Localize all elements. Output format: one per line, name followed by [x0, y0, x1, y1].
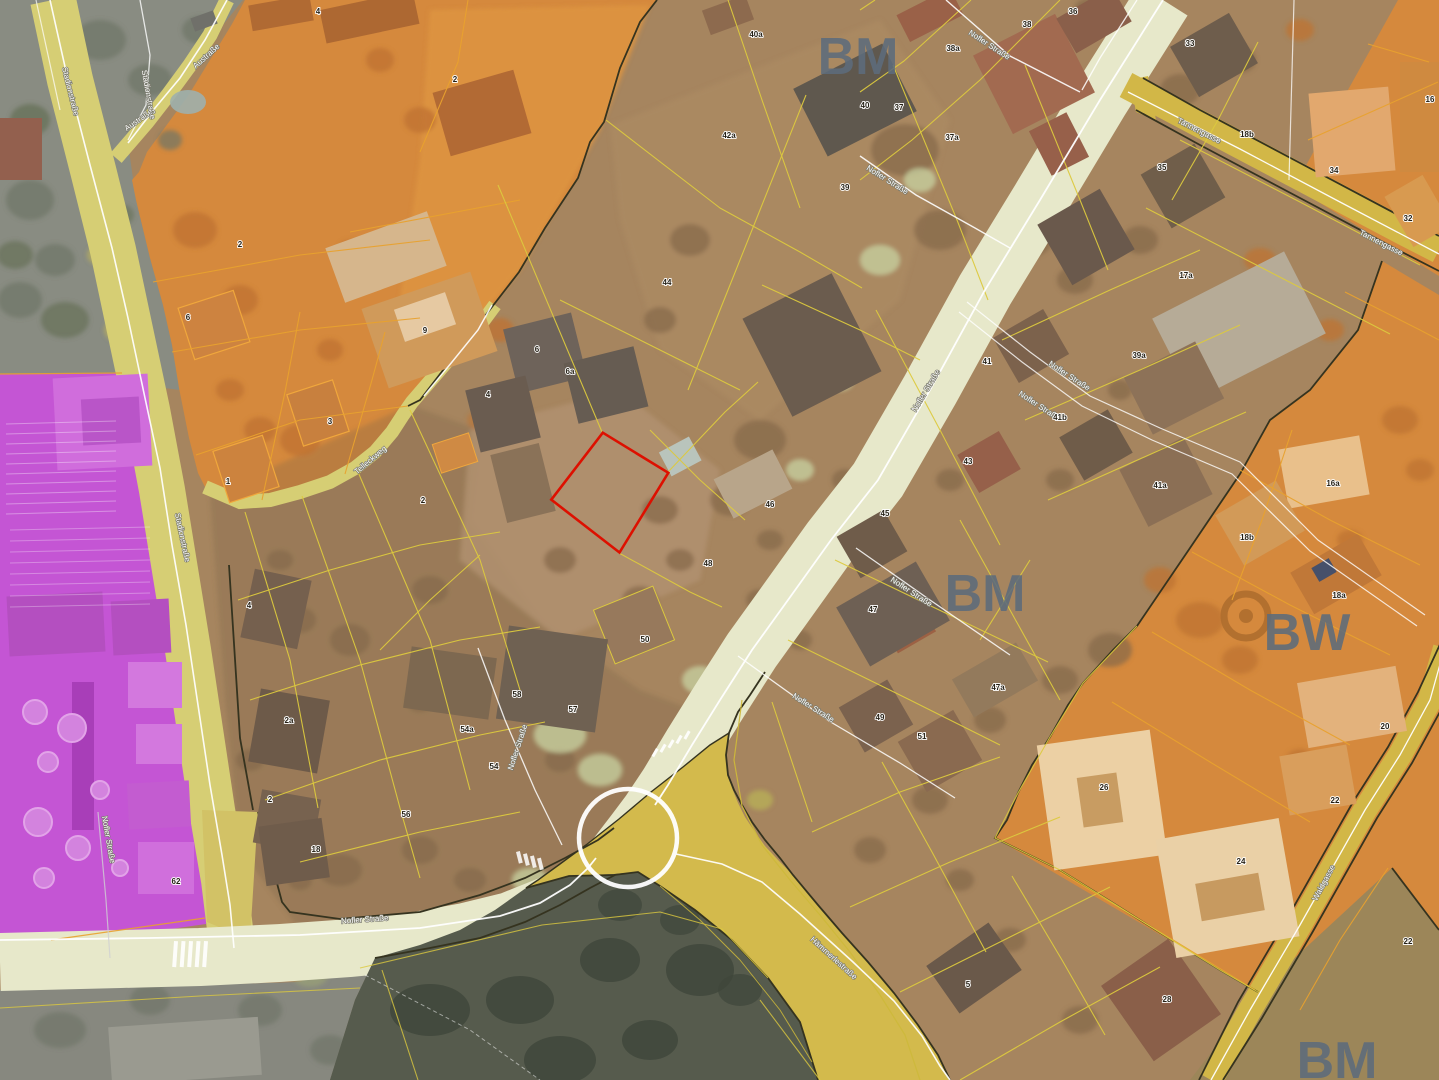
svg-text:37a: 37a — [945, 133, 959, 142]
svg-text:57: 57 — [569, 705, 578, 714]
svg-text:18: 18 — [312, 845, 321, 854]
svg-text:38: 38 — [1023, 20, 1032, 29]
svg-text:4: 4 — [247, 601, 252, 610]
svg-text:34: 34 — [1330, 166, 1339, 175]
svg-text:47a: 47a — [991, 683, 1005, 692]
svg-text:16a: 16a — [1326, 479, 1340, 488]
svg-text:54a: 54a — [460, 725, 474, 734]
svg-text:24: 24 — [1237, 857, 1246, 866]
svg-text:9: 9 — [423, 326, 428, 335]
svg-text:6a: 6a — [566, 367, 575, 376]
svg-text:BW: BW — [1264, 604, 1352, 662]
svg-text:26: 26 — [1100, 783, 1109, 792]
svg-text:42a: 42a — [722, 131, 736, 140]
svg-text:18a: 18a — [1332, 591, 1346, 600]
svg-text:33: 33 — [1186, 39, 1195, 48]
svg-text:44: 44 — [663, 278, 672, 287]
svg-text:39: 39 — [841, 183, 850, 192]
svg-text:2: 2 — [268, 795, 273, 804]
svg-text:22: 22 — [1331, 796, 1340, 805]
svg-text:37: 37 — [895, 103, 904, 112]
svg-text:18b: 18b — [1240, 130, 1254, 139]
svg-text:45: 45 — [881, 509, 890, 518]
svg-text:48: 48 — [704, 559, 713, 568]
svg-text:51: 51 — [918, 732, 927, 741]
svg-text:43: 43 — [964, 457, 973, 466]
svg-text:BM: BM — [1297, 1032, 1378, 1080]
svg-text:2a: 2a — [285, 716, 294, 725]
svg-text:62: 62 — [172, 877, 181, 886]
svg-text:50: 50 — [641, 635, 650, 644]
svg-text:BM: BM — [818, 28, 899, 86]
svg-text:35: 35 — [1158, 163, 1167, 172]
svg-text:41a: 41a — [1153, 481, 1167, 490]
svg-text:40a: 40a — [749, 30, 763, 39]
svg-text:2: 2 — [238, 240, 243, 249]
svg-text:18b: 18b — [1240, 533, 1254, 542]
svg-text:56: 56 — [402, 810, 411, 819]
svg-text:6: 6 — [186, 313, 191, 322]
svg-text:47: 47 — [869, 605, 878, 614]
svg-text:4: 4 — [486, 390, 491, 399]
svg-text:41: 41 — [983, 357, 992, 366]
svg-text:58: 58 — [513, 690, 522, 699]
svg-text:2: 2 — [421, 496, 426, 505]
svg-text:36: 36 — [1069, 7, 1078, 16]
svg-text:1: 1 — [226, 477, 231, 486]
svg-text:16: 16 — [1426, 95, 1435, 104]
svg-text:4: 4 — [316, 7, 321, 16]
svg-text:40: 40 — [861, 101, 870, 110]
svg-text:46: 46 — [766, 500, 775, 509]
svg-text:28: 28 — [1163, 995, 1172, 1004]
svg-text:32: 32 — [1404, 214, 1413, 223]
svg-text:BM: BM — [945, 565, 1026, 623]
svg-text:20: 20 — [1381, 722, 1390, 731]
svg-text:5: 5 — [966, 980, 971, 989]
svg-text:22: 22 — [1404, 937, 1413, 946]
svg-text:41b: 41b — [1053, 413, 1067, 422]
svg-text:6: 6 — [535, 345, 540, 354]
svg-text:17a: 17a — [1179, 271, 1193, 280]
svg-text:3: 3 — [328, 417, 333, 426]
svg-text:39a: 39a — [1132, 351, 1146, 360]
svg-text:54: 54 — [490, 762, 499, 771]
svg-text:2: 2 — [453, 75, 458, 84]
svg-text:38a: 38a — [946, 44, 960, 53]
svg-text:49: 49 — [876, 713, 885, 722]
